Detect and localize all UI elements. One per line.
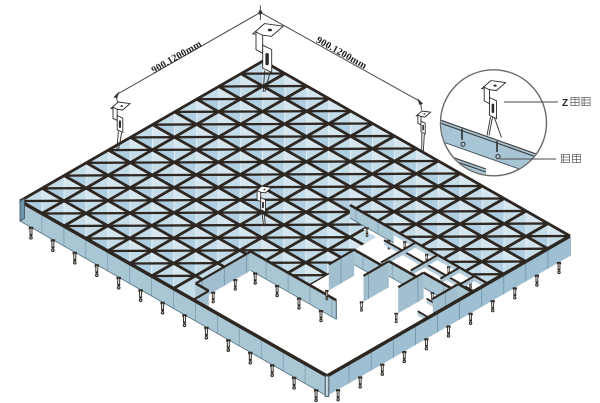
svg-text:Z: Z (562, 98, 568, 109)
